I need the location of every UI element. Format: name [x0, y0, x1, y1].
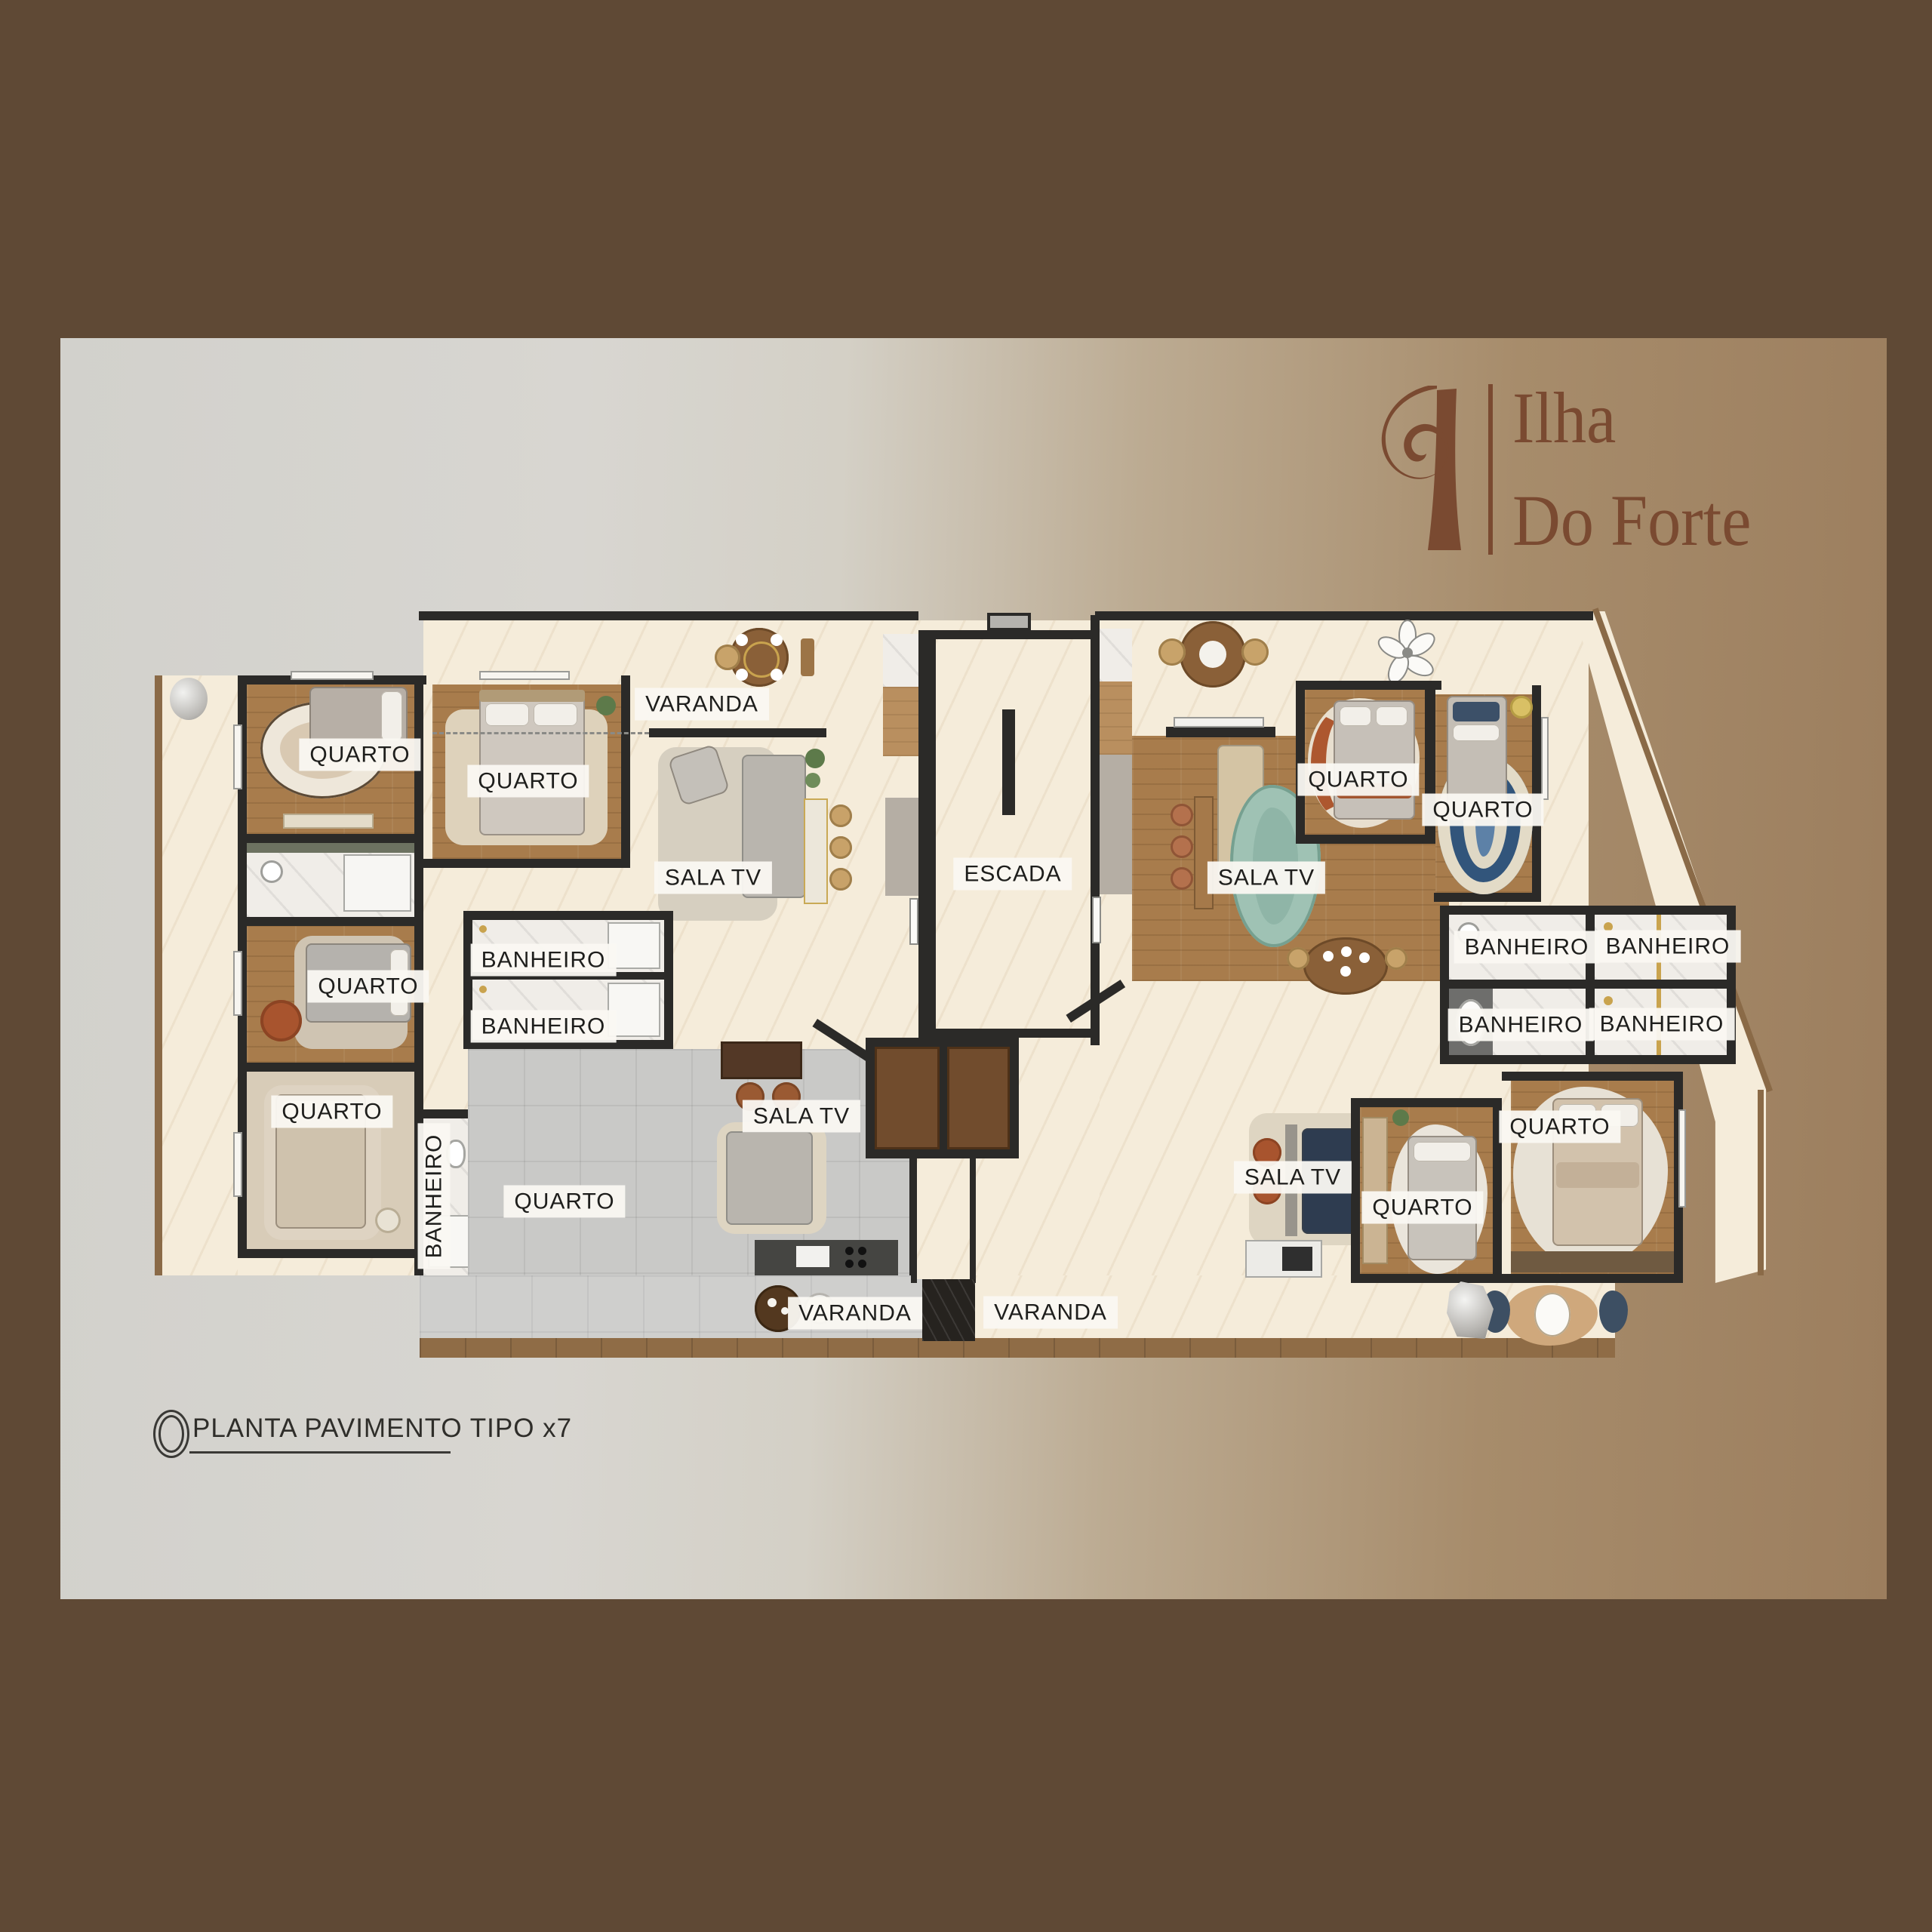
labels-layer: QUARTOQUARTOVARANDASALA TVBANHEIROBANHEI… [155, 611, 1762, 1355]
room-label: BANHEIRO [1595, 931, 1741, 963]
room-label: ESCADA [953, 858, 1072, 891]
poster: Ilha Do Forte [0, 0, 1932, 1932]
caption-circle-icon [153, 1410, 189, 1458]
room-label: SALA TV [654, 862, 772, 894]
room-label: QUARTO [467, 765, 589, 798]
caption-text: PLANTA PAVIMENTO TIPO x7 [189, 1414, 451, 1454]
room-label: VARANDA [635, 688, 769, 721]
room-label: BANHEIRO [1589, 1008, 1735, 1041]
room-label: BANHEIRO [471, 1011, 617, 1043]
room-label: SALA TV [743, 1100, 860, 1133]
room-label: QUARTO [307, 971, 429, 1003]
room-label: BANHEIRO [418, 1124, 451, 1269]
room-label: QUARTO [1499, 1111, 1620, 1143]
logo-monogram-icon [1381, 386, 1466, 553]
room-label: QUARTO [1361, 1192, 1483, 1224]
logo-divider [1488, 384, 1493, 555]
room-label: QUARTO [299, 739, 420, 771]
caption: PLANTA PAVIMENTO TIPO x7 [153, 1410, 451, 1454]
room-label: SALA TV [1207, 862, 1325, 894]
room-label: BANHEIRO [1448, 1009, 1594, 1041]
room-label: QUARTO [503, 1186, 625, 1218]
room-label: QUARTO [271, 1096, 392, 1128]
logo-line1: Ilha [1512, 383, 1751, 454]
room-label: SALA TV [1234, 1161, 1352, 1194]
logo-line2: Do Forte [1512, 485, 1751, 556]
panel-background: Ilha Do Forte [60, 338, 1887, 1599]
room-label: VARANDA [983, 1297, 1118, 1329]
room-label: VARANDA [788, 1297, 922, 1330]
room-label: BANHEIRO [471, 944, 617, 977]
room-label: QUARTO [1422, 794, 1543, 826]
floor-plan: QUARTOQUARTOVARANDASALA TVBANHEIROBANHEI… [155, 611, 1762, 1355]
room-label: BANHEIRO [1454, 931, 1600, 964]
room-label: QUARTO [1297, 764, 1419, 796]
brand-logo: Ilha Do Forte [1381, 381, 1772, 556]
